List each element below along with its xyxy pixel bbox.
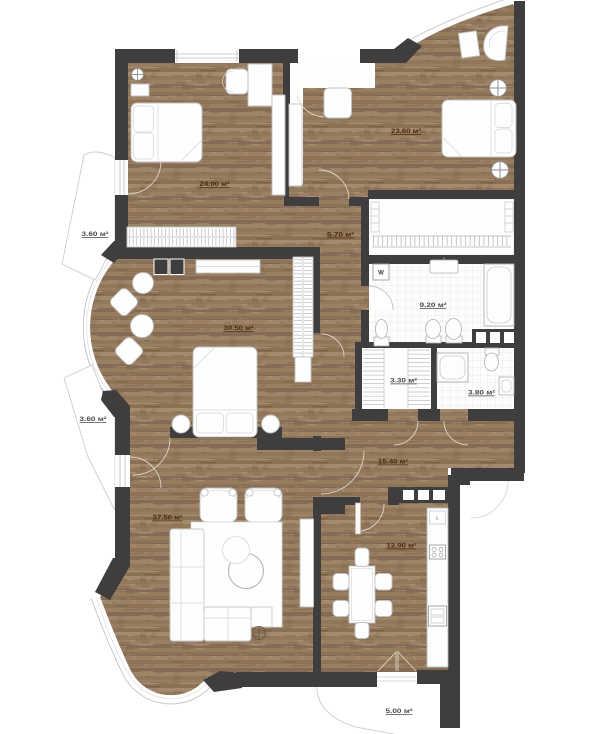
svg-text:15.40 м²: 15.40 м² — [378, 459, 409, 466]
svg-text:30.50 м²: 30.50 м² — [224, 325, 255, 332]
svg-text:23.60 м²: 23.60 м² — [391, 128, 422, 135]
svg-text:5.70 м²: 5.70 м² — [327, 232, 355, 239]
svg-text:3.80 м²: 3.80 м² — [468, 390, 496, 397]
svg-text:9.20 м²: 9.20 м² — [420, 302, 448, 309]
svg-text:5.00 м²: 5.00 м² — [386, 708, 414, 715]
svg-text:3.30 м²: 3.30 м² — [390, 378, 418, 385]
svg-text:12.90 м²: 12.90 м² — [387, 543, 418, 550]
svg-text:24.00 м²: 24.00 м² — [200, 181, 231, 188]
svg-text:3.60 м²: 3.60 м² — [80, 416, 108, 423]
svg-text:W: W — [378, 271, 384, 277]
svg-text:37.50 м²: 37.50 м² — [153, 515, 184, 522]
svg-text:b: b — [436, 516, 439, 522]
svg-text:3.60 м²: 3.60 м² — [82, 231, 110, 238]
